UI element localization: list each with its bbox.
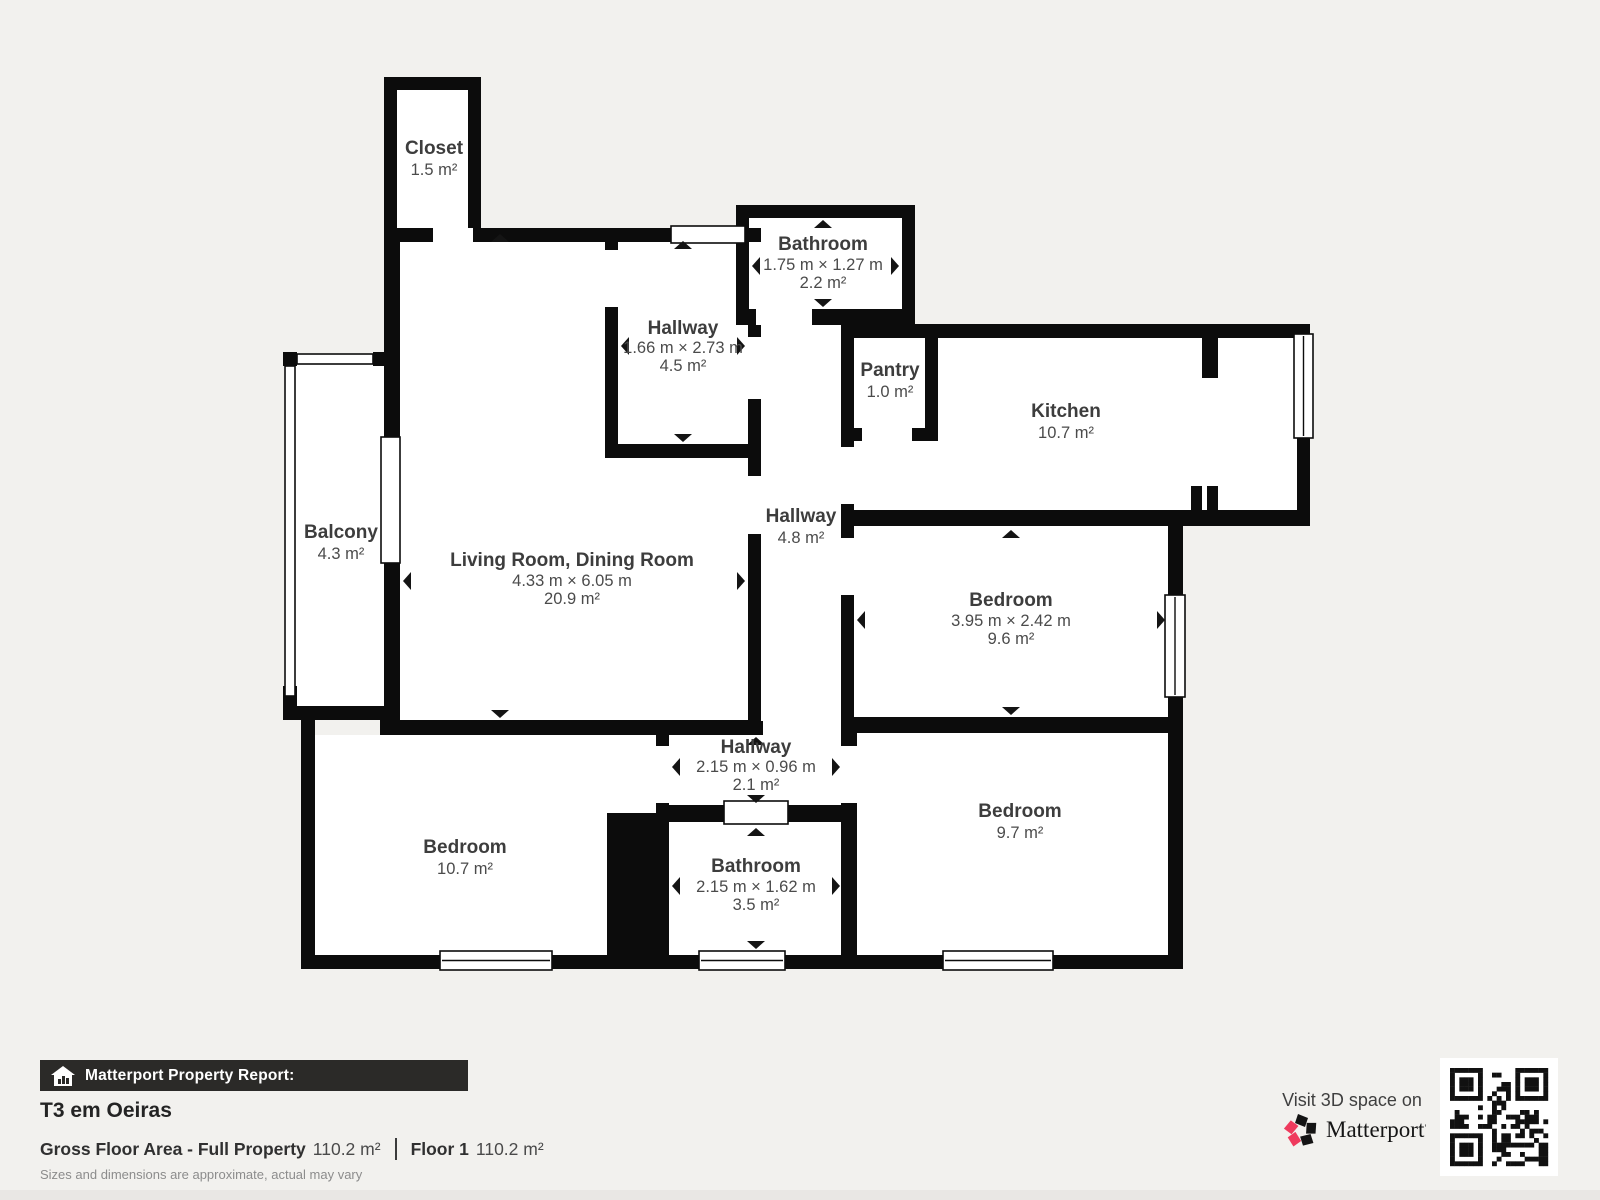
floor-value: 110.2 m²	[476, 1139, 544, 1160]
room-area-living: 20.9 m²	[544, 590, 600, 608]
room-label-kitchen: Kitchen	[1031, 401, 1101, 422]
qr-code	[1440, 1058, 1558, 1176]
room-area-hallway-mid: 4.8 m²	[778, 529, 825, 547]
room-label-bathroom-top: Bathroom	[778, 234, 868, 255]
room-area-bedroom-right: 9.6 m²	[988, 630, 1035, 648]
room-label-bathroom-bottom: Bathroom	[711, 856, 801, 877]
room-closet	[397, 90, 468, 228]
room-label-closet: Closet	[405, 138, 464, 159]
room-label-hallway-top: Hallway	[648, 318, 719, 339]
room-dims-bedroom-right: 3.95 m × 2.42 m	[951, 612, 1071, 630]
floor-label: Floor 1	[411, 1139, 469, 1160]
separator	[395, 1138, 397, 1160]
room-area-bedroom-bottom-right: 9.7 m²	[997, 824, 1044, 842]
hallway-top-window	[671, 226, 745, 243]
floor-plan: Closet 1.5 m² Hallway 1.66 m × 2.73 m 4.…	[0, 0, 1600, 1045]
room-area-hallway-top: 4.5 m²	[660, 357, 707, 375]
matterport-logo-icon	[1283, 1112, 1319, 1148]
room-area-hallway-bottom: 2.1 m²	[733, 776, 780, 794]
room-bedroom-bottom-right	[857, 733, 1168, 955]
room-label-hallway-mid: Hallway	[766, 506, 837, 527]
room-dims-living: 4.33 m × 6.05 m	[512, 572, 632, 590]
room-label-bedroom-right: Bedroom	[969, 590, 1052, 611]
room-area-bathroom-bottom: 3.5 m²	[733, 896, 780, 914]
room-label-pantry: Pantry	[860, 360, 920, 381]
room-area-bedroom-left: 10.7 m²	[437, 860, 493, 878]
property-title: T3 em Oeiras	[40, 1099, 172, 1123]
room-kitchen	[938, 338, 1297, 510]
gfa-value: 110.2 m²	[313, 1139, 381, 1160]
room-dims-hallway-bottom: 2.15 m × 0.96 m	[696, 758, 816, 776]
room-dims-bathroom-top: 1.75 m × 1.27 m	[763, 256, 883, 274]
room-area-balcony: 4.3 m²	[318, 545, 365, 563]
room-area-closet: 1.5 m²	[411, 161, 458, 179]
matterport-wordmark: Matterport	[1326, 1117, 1424, 1143]
trademark-mark: ʼ	[1424, 1125, 1426, 1135]
room-kitchen-ext	[854, 441, 938, 510]
house-chart-icon	[51, 1066, 75, 1086]
room-area-pantry: 1.0 m²	[867, 383, 914, 401]
room-label-balcony: Balcony	[304, 522, 378, 543]
room-label-hallway-bottom: Hallway	[721, 737, 792, 758]
qr-code-pattern	[1440, 1058, 1558, 1176]
balcony-window-top	[297, 354, 373, 364]
page-edge-strip	[0, 1190, 1600, 1200]
room-label-living: Living Room, Dining Room	[450, 550, 694, 571]
door-bathroom-bottom	[724, 801, 788, 824]
room-area-bathroom-top: 2.2 m²	[800, 274, 847, 292]
floor-area-line: Gross Floor Area - Full Property 110.2 m…	[40, 1138, 544, 1160]
disclaimer-text: Sizes and dimensions are approximate, ac…	[40, 1167, 362, 1182]
report-header-bar: Matterport Property Report:	[40, 1060, 468, 1091]
balcony-window-left	[285, 366, 295, 696]
room-label-bedroom-left: Bedroom	[423, 837, 506, 858]
room-label-bedroom-bottom-right: Bedroom	[978, 801, 1061, 822]
balcony-door	[381, 437, 400, 563]
report-bar-label: Matterport Property Report:	[85, 1067, 295, 1085]
room-dims-bathroom-bottom: 2.15 m × 1.62 m	[696, 878, 816, 896]
matterport-brand: Matterport ʼ	[1283, 1112, 1427, 1148]
matterport-floorplan-report: Closet 1.5 m² Hallway 1.66 m × 2.73 m 4.…	[0, 0, 1600, 1200]
room-dims-hallway-top: 1.66 m × 2.73 m	[623, 339, 743, 357]
gfa-label: Gross Floor Area - Full Property	[40, 1139, 306, 1160]
room-area-kitchen: 10.7 m²	[1038, 424, 1094, 442]
visit-3d-label: Visit 3D space on	[1258, 1090, 1446, 1111]
